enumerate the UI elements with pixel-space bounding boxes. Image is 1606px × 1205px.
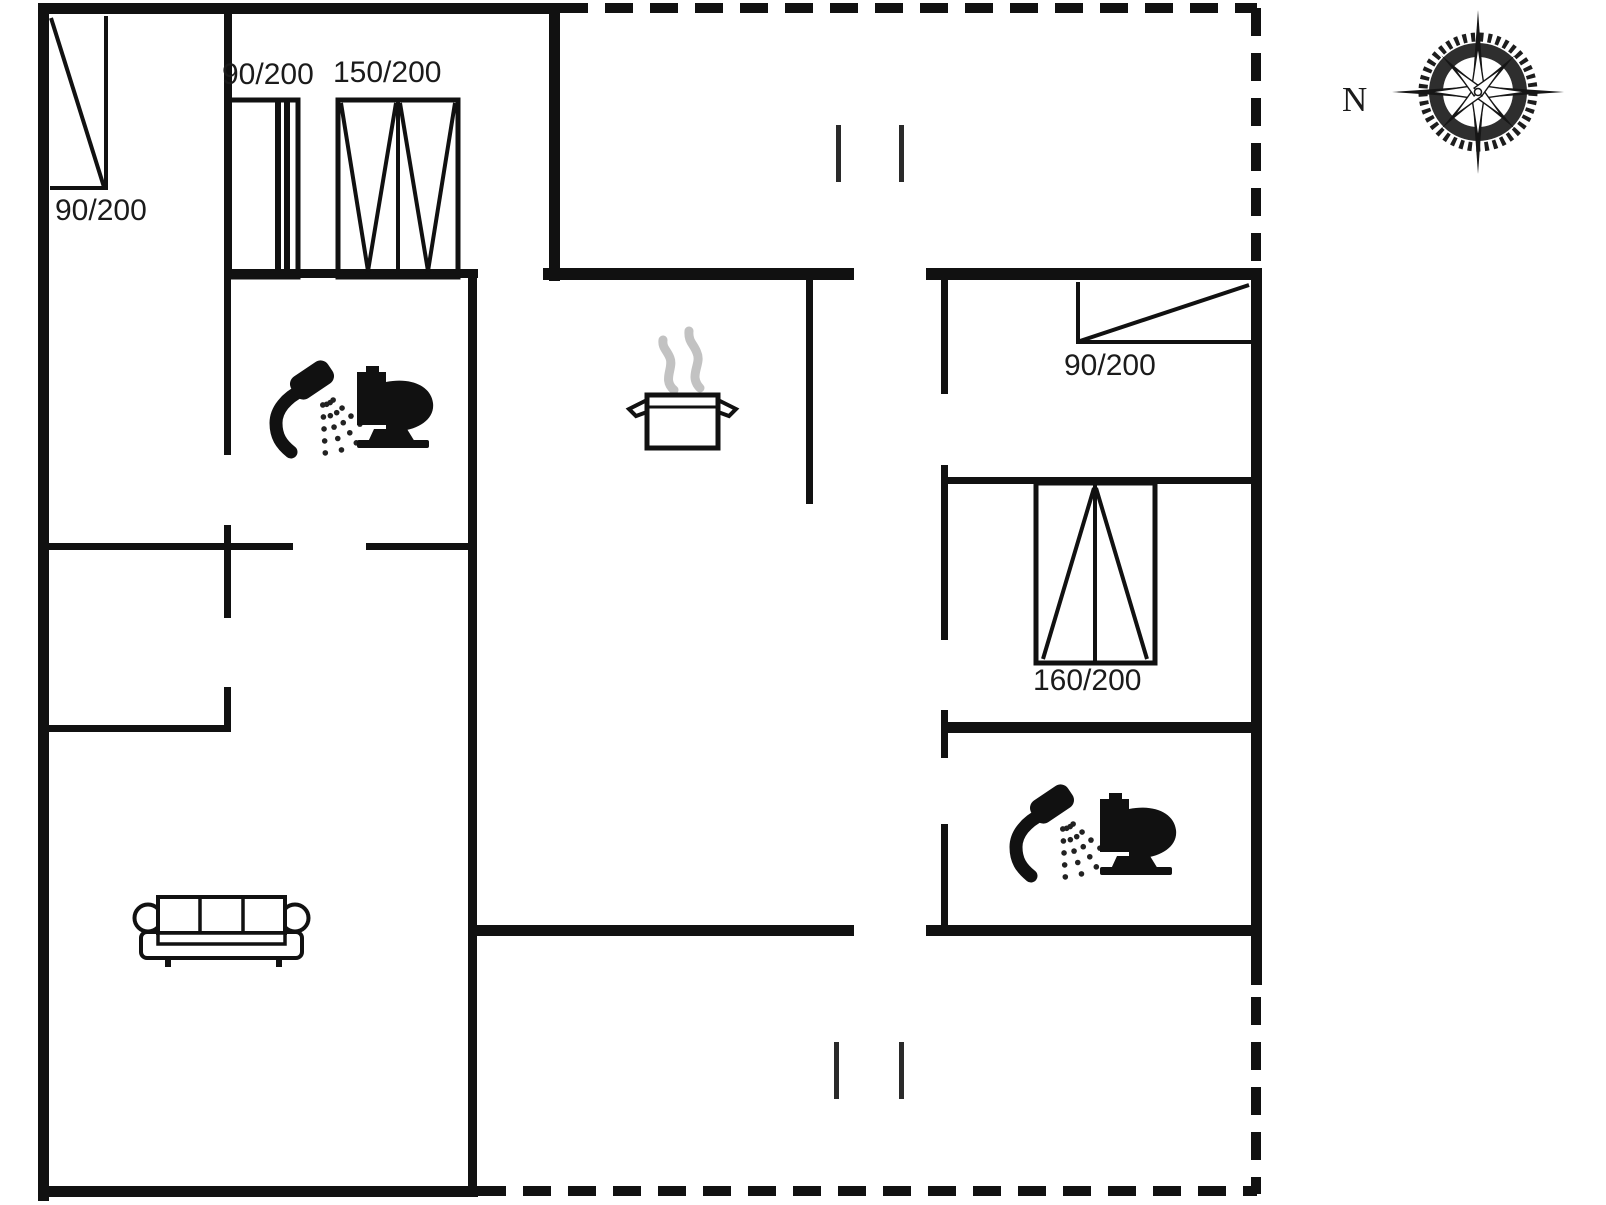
shower-handle bbox=[1016, 814, 1042, 876]
compass-rose-icon bbox=[1392, 10, 1564, 174]
spray-dot bbox=[1061, 850, 1067, 856]
wall bbox=[38, 3, 49, 1201]
spray-dot bbox=[322, 438, 328, 444]
spray-dot bbox=[331, 424, 337, 430]
window-diagonal bbox=[51, 18, 104, 187]
spray-dot bbox=[335, 436, 341, 442]
wardrobe-door-bar bbox=[284, 102, 290, 275]
sofa-foot bbox=[165, 958, 171, 967]
wall bbox=[806, 280, 813, 504]
spray-dot bbox=[1068, 837, 1074, 843]
wall bbox=[366, 543, 472, 550]
wardrobe-door-bar bbox=[275, 102, 281, 275]
spray-dot bbox=[1094, 864, 1100, 870]
wall bbox=[224, 525, 231, 618]
toilet-foot bbox=[1100, 867, 1172, 875]
wall bbox=[468, 276, 477, 1197]
spray-dot bbox=[321, 414, 327, 420]
spray-dot bbox=[1062, 862, 1068, 868]
wall bbox=[224, 278, 231, 455]
wall bbox=[941, 280, 948, 394]
shower-handle bbox=[276, 390, 302, 452]
wall bbox=[941, 824, 948, 927]
spray-dot bbox=[1088, 837, 1094, 843]
spray-dot bbox=[334, 410, 340, 416]
door-marker-tick bbox=[899, 1042, 904, 1099]
steam-wisp bbox=[689, 331, 700, 388]
spray-dot bbox=[1079, 871, 1085, 877]
spray-dot bbox=[1087, 854, 1093, 860]
wardrobe-160x200 bbox=[1036, 483, 1155, 663]
toilet-foot bbox=[357, 440, 429, 448]
floor-plan-canvas bbox=[0, 0, 1606, 1205]
wall bbox=[941, 465, 948, 640]
spray-dot bbox=[320, 402, 326, 408]
window-90x200-right bbox=[1078, 282, 1251, 344]
spray-dot bbox=[348, 413, 354, 419]
wardrobe-door-line bbox=[368, 103, 396, 271]
wall bbox=[941, 710, 948, 758]
spray-dot bbox=[339, 447, 345, 453]
spray-dot bbox=[1060, 826, 1066, 832]
sofa-foot bbox=[276, 958, 282, 967]
closet-150x200 bbox=[338, 100, 458, 277]
wardrobe-door-line bbox=[428, 103, 455, 271]
door-marker-tick bbox=[836, 125, 841, 182]
spray-dot bbox=[1075, 860, 1081, 866]
sofa-icon bbox=[135, 897, 309, 967]
spray-dot bbox=[1074, 834, 1080, 840]
spray-dot bbox=[322, 450, 328, 456]
spray-dot bbox=[1079, 829, 1085, 835]
toilet-bowl bbox=[386, 381, 433, 431]
wall bbox=[44, 725, 231, 732]
toilet-icon bbox=[1100, 793, 1176, 875]
closet-90x200 bbox=[227, 100, 298, 277]
spray-dot bbox=[1080, 844, 1086, 850]
spray-dot bbox=[321, 426, 327, 432]
wall bbox=[926, 268, 1262, 280]
wall bbox=[44, 543, 293, 550]
door-marker-tick bbox=[899, 125, 904, 182]
compass-hub bbox=[1475, 89, 1482, 96]
wall bbox=[468, 925, 854, 936]
wall bbox=[549, 3, 560, 281]
cooking-pot-icon bbox=[629, 331, 736, 448]
shower-icon bbox=[1016, 781, 1103, 880]
sofa-seat bbox=[158, 933, 285, 944]
spray-dot bbox=[1061, 838, 1067, 844]
pot-body bbox=[647, 395, 718, 448]
wall bbox=[38, 3, 560, 14]
toilet-icon bbox=[357, 366, 433, 448]
toilet-tank bbox=[357, 372, 386, 425]
wall bbox=[926, 925, 1262, 936]
wall bbox=[941, 722, 1262, 733]
window-90x200-left bbox=[50, 16, 106, 190]
toilet-tank bbox=[1100, 799, 1129, 852]
spray-dot bbox=[1062, 874, 1068, 880]
spray-dot bbox=[339, 405, 345, 411]
door-marker-tick bbox=[834, 1042, 839, 1099]
pot-handle-right bbox=[718, 400, 736, 416]
spray-dot bbox=[1071, 848, 1077, 854]
sofa-back bbox=[158, 897, 285, 933]
window-diagonal bbox=[1080, 285, 1249, 341]
wall bbox=[1251, 268, 1262, 985]
wall bbox=[38, 1186, 478, 1197]
wardrobe-door-line bbox=[400, 103, 428, 271]
pot-handle-left bbox=[629, 400, 647, 416]
spray-dot bbox=[328, 413, 334, 419]
shower-icon bbox=[276, 357, 363, 456]
wardrobe-door-line bbox=[341, 103, 368, 271]
floor-plan: 90/20090/200150/20090/200160/200N bbox=[0, 0, 1606, 1205]
steam-wisp bbox=[663, 340, 674, 390]
wall bbox=[543, 268, 854, 280]
wardrobe-door-line bbox=[1043, 488, 1094, 659]
spray-dot bbox=[347, 430, 353, 436]
wardrobe-door-line bbox=[1096, 488, 1147, 659]
toilet-bowl bbox=[1129, 808, 1176, 858]
spray-dot bbox=[340, 420, 346, 426]
